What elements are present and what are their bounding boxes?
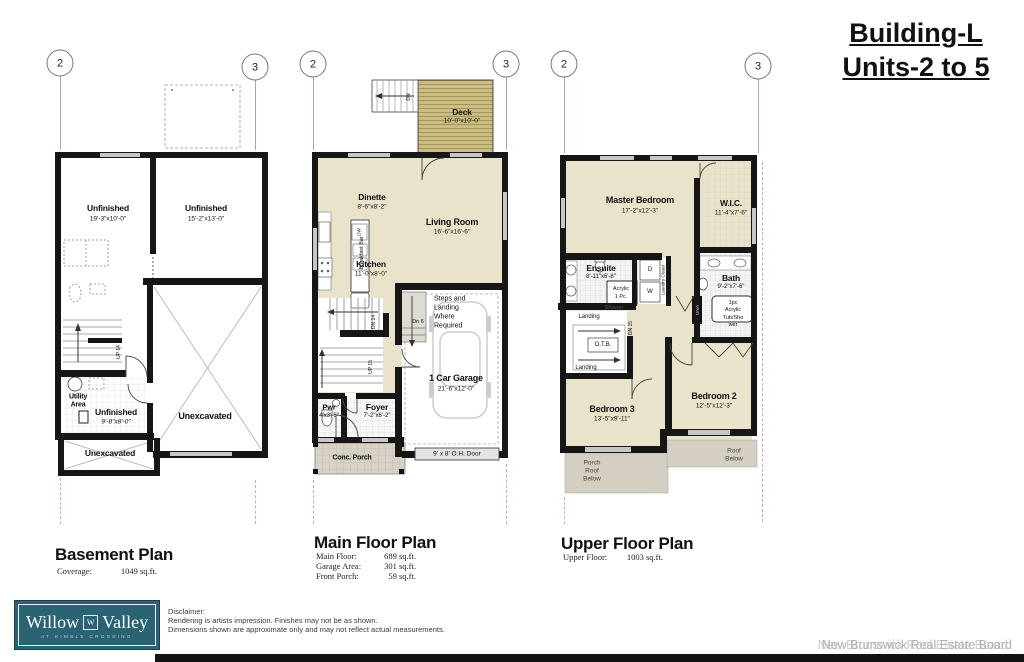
willow-valley-logo: Willow W Valley AT KIMBLE CROSSING bbox=[14, 600, 160, 650]
main-floor-plan-title: Main Floor Plan bbox=[314, 533, 436, 553]
upper-washer-label: W bbox=[647, 289, 653, 295]
basement-room-unfinished3-dims: 9'-8"x8'-0" bbox=[101, 419, 130, 426]
main-stat-row: Front Porch: 59 sq.ft. bbox=[316, 571, 416, 581]
main-garage-dims: 21'-6"x12'-0" bbox=[438, 386, 474, 393]
logo-inner-frame: Willow W Valley AT KIMBLE CROSSING bbox=[18, 604, 156, 646]
basement-stat-row: Coverage: 1049 sq.ft. bbox=[57, 566, 157, 576]
upper-roof-below-label-line2: Below bbox=[725, 456, 743, 463]
building-title-line2: Units-2 to 5 bbox=[816, 50, 1016, 84]
disclaimer-line1: Disclaimer: bbox=[168, 607, 445, 616]
disclaimer-line3: Dimensions shown are approximate only an… bbox=[168, 625, 445, 634]
main-foyer-dims: 7'-2"x6'-2" bbox=[364, 413, 391, 419]
logo-word1: Willow bbox=[26, 612, 79, 633]
main-deck-name: Deck bbox=[452, 107, 472, 117]
main-steps-note-line3: Where bbox=[434, 314, 455, 321]
upper-master-name: Master Bedroom bbox=[606, 195, 674, 205]
upper-tub-label-line1: 1pc bbox=[729, 300, 738, 306]
column-marker-upper-3: 3 bbox=[745, 53, 772, 80]
stat-value: 301 sq.ft. bbox=[370, 561, 416, 571]
upper-shower-label-line1: Acrylic bbox=[613, 286, 629, 292]
column-marker-basement-2: 2 bbox=[47, 50, 74, 77]
stat-label: Main Floor: bbox=[316, 551, 370, 561]
disclaimer-text: Disclaimer: Rendering is artists impress… bbox=[168, 607, 445, 634]
main-dn6-label: Dn 6 bbox=[412, 319, 424, 325]
main-up15-label: UP 15 bbox=[368, 360, 374, 374]
basement-room-unfinished1-dims: 19'-3"x10'-0" bbox=[90, 216, 126, 223]
basement-room-unfinished1-name: Unfinished bbox=[87, 203, 129, 213]
disclaimer-line2: Rendering is artists impression. Finishe… bbox=[168, 616, 445, 625]
upper-bedroom3-dims: 13'-5"x9'-11" bbox=[594, 416, 630, 423]
upper-linen-label: Linen bbox=[695, 305, 700, 315]
basement-up14-label: UP 14 bbox=[116, 345, 122, 359]
column-marker-main-2: 2 bbox=[300, 51, 327, 78]
column-marker-label: 2 bbox=[57, 57, 63, 69]
basement-unexcavated-right-label: Unexcavated bbox=[178, 411, 231, 421]
basement-plan-drawing bbox=[40, 78, 280, 530]
basement-plan-title: Basement Plan bbox=[55, 545, 173, 565]
upper-shower-label-line2: 1 Pc. bbox=[615, 294, 628, 300]
logo-monogram-icon: W bbox=[83, 615, 98, 630]
main-stat-row: Main Floor: 689 sq.ft. bbox=[316, 551, 416, 561]
main-steps-note-line1: Steps and bbox=[434, 296, 466, 303]
upper-roof-below-label-line1: Roof bbox=[727, 448, 741, 455]
main-steps-note-line4: Required bbox=[434, 323, 462, 330]
upper-stat-row: Upper Floor: 1003 sq.ft. bbox=[563, 552, 663, 562]
basement-room-unfinished2-dims: 15'-2"x13'-0" bbox=[188, 216, 224, 223]
stat-value: 1049 sq.ft. bbox=[111, 566, 157, 576]
main-pwr-name: Pwr bbox=[322, 403, 335, 412]
column-marker-label: 2 bbox=[310, 58, 316, 70]
main-living-name: Living Room bbox=[426, 217, 478, 227]
main-deck-dims: 10'-0"x10'-0" bbox=[444, 118, 480, 125]
building-title-line1: Building-L bbox=[816, 16, 1016, 50]
column-marker-label: 3 bbox=[252, 61, 258, 73]
main-oh-door-label: 9' x 8' O.H. Door bbox=[433, 451, 481, 458]
main-pwr-dims: 4'x3'-6" bbox=[319, 413, 338, 419]
main-dinette-dims: 8'-6"x8'-2" bbox=[357, 204, 386, 211]
upper-landing-top-label: Landing bbox=[578, 314, 599, 320]
main-dinette-name: Dinette bbox=[358, 192, 385, 202]
stat-label: Front Porch: bbox=[316, 571, 370, 581]
stat-value: 1003 sq.ft. bbox=[617, 552, 663, 562]
main-stat-row: Garage Area: 301 sq.ft. bbox=[316, 561, 416, 571]
upper-bedroom3-name: Bedroom 3 bbox=[589, 404, 634, 414]
bottom-black-bar bbox=[155, 654, 1024, 662]
main-floor-plan-drawing bbox=[300, 76, 512, 488]
upper-laundry-closet-label: Laundry Closet bbox=[661, 265, 666, 295]
stat-label: Coverage: bbox=[57, 566, 111, 576]
main-kitchen-dims: 11'-0"x8'-0" bbox=[355, 271, 387, 278]
upper-dn15-label: DN 15 bbox=[628, 321, 634, 335]
column-marker-label: 2 bbox=[561, 58, 567, 70]
main-garage-name: 1 Car Garage bbox=[429, 373, 483, 383]
upper-wic-name: W.I.C. bbox=[720, 198, 742, 208]
main-dw-label: DW bbox=[357, 228, 362, 236]
upper-porch-roof-label-line2: Roof bbox=[585, 468, 599, 475]
stat-value: 59 sq.ft. bbox=[370, 571, 416, 581]
upper-bath-dims: 9'-2"x7'-6" bbox=[718, 284, 745, 290]
column-marker-main-3: 3 bbox=[493, 51, 520, 78]
upper-bedroom2-name: Bedroom 2 bbox=[691, 391, 736, 401]
basement-room-unfinished2-name: Unfinished bbox=[185, 203, 227, 213]
main-foyer-name: Foyer bbox=[366, 402, 388, 412]
building-title: Building-L Units-2 to 5 bbox=[816, 16, 1016, 84]
main-kitchen-name: Kitchen bbox=[356, 259, 386, 269]
upper-otb-label: O.T.B. bbox=[595, 342, 612, 348]
upper-tub-label-line2: Acrylic bbox=[725, 307, 741, 313]
upper-bath-name: Bath bbox=[722, 273, 740, 283]
upper-shower-label-line3: Shower bbox=[605, 305, 624, 311]
upper-floor-plan-title: Upper Floor Plan bbox=[561, 534, 693, 554]
upper-tub-label-line4: wer bbox=[729, 322, 738, 328]
main-porch-label: Conc. Porch bbox=[332, 455, 371, 462]
column-marker-upper-2: 2 bbox=[551, 51, 578, 78]
upper-bedroom2-dims: 12'-5"x12'-3" bbox=[696, 403, 732, 410]
upper-porch-roof-label-line3: Below bbox=[583, 476, 601, 483]
upper-dryer-label: D bbox=[648, 267, 652, 273]
logo-word2: Valley bbox=[102, 612, 148, 633]
upper-ensuite-name: Ensuite bbox=[586, 263, 615, 273]
column-marker-label: 3 bbox=[503, 58, 509, 70]
main-deck-dn-label: DN bbox=[406, 93, 412, 100]
basement-unexcavated-bottom-label: Unexcavated bbox=[85, 448, 135, 458]
column-marker-label: 3 bbox=[755, 60, 761, 72]
stat-value: 689 sq.ft. bbox=[370, 551, 416, 561]
column-marker-basement-3: 3 bbox=[242, 54, 269, 81]
upper-landing-bottom-label: Landing bbox=[575, 365, 596, 371]
main-dn14-label: DN 14 bbox=[371, 315, 377, 329]
basement-utility-label-line2: Area bbox=[71, 402, 86, 409]
basement-utility-label-line1: Utility bbox=[69, 394, 87, 401]
upper-tub-label-line3: Tub/Sho bbox=[723, 315, 744, 321]
logo-tagline: AT KIMBLE CROSSING bbox=[41, 634, 133, 639]
basement-room-unfinished3-name: Unfinished bbox=[95, 407, 137, 417]
floorplan-sheet: Building-L Units-2 to 5 2 3 2 3 2 3 bbox=[0, 0, 1024, 662]
upper-porch-roof-label-line1: Porch bbox=[584, 460, 601, 467]
main-steps-note-line2: Landing bbox=[434, 305, 459, 312]
upper-master-dims: 17'-2"x12'-3" bbox=[622, 208, 658, 215]
upper-ensuite-dims: 8'-11"x6'-8" bbox=[586, 274, 616, 280]
main-living-dims: 16'-6"x16'-6" bbox=[434, 229, 470, 236]
real-estate-board-watermark: New Brunswick Real Estate Board bbox=[822, 638, 1012, 652]
stat-label: Upper Floor: bbox=[563, 552, 617, 562]
stat-label: Garage Area: bbox=[316, 561, 370, 571]
upper-wic-dims: 11'-4"x7'-6" bbox=[715, 210, 747, 217]
